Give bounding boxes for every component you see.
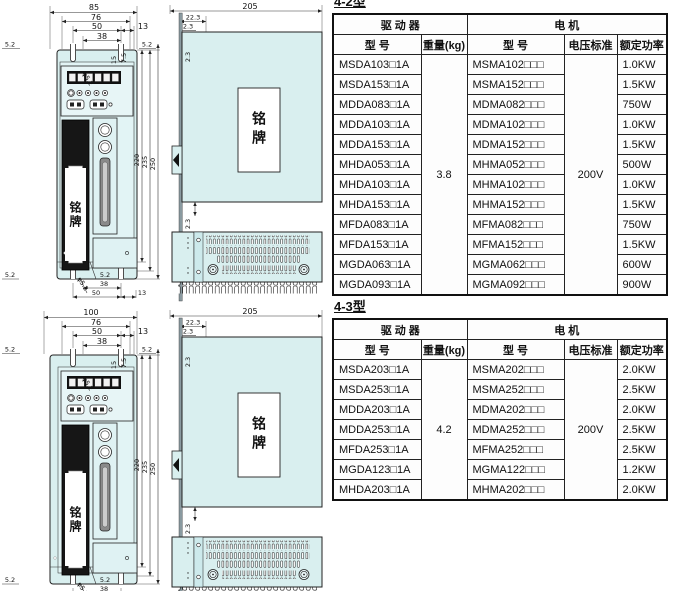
dim-label: 76 bbox=[91, 13, 101, 22]
connector-column bbox=[93, 423, 117, 539]
table-row: MSDA253□1AMSMA252□□□2.5KW bbox=[333, 380, 667, 400]
driver-model: MHDA203□1A bbox=[333, 480, 421, 501]
dim-label: 5.2 bbox=[142, 346, 152, 354]
dim-label: 205 bbox=[242, 2, 257, 11]
driver-model: MGDA063□1A bbox=[333, 255, 421, 275]
driver-model: MSDA203□1A bbox=[333, 360, 421, 380]
table-row: MGDA123□1AMGMA122□□□1.2KW bbox=[333, 460, 667, 480]
dim-label: 220 bbox=[133, 459, 141, 471]
motor-model: MDMA252□□□ bbox=[467, 420, 564, 440]
rated-power: 2.0KW bbox=[617, 400, 667, 420]
motor-model: MDMA082□□□ bbox=[467, 95, 564, 115]
nameplate-text: 铭牌 bbox=[239, 92, 279, 168]
rated-power: 750W bbox=[617, 215, 667, 235]
dim-label: 235 bbox=[141, 156, 149, 168]
nameplate-text: 铭牌 bbox=[65, 473, 86, 566]
terminal-cover bbox=[93, 543, 137, 573]
column-header-row: 型 号 重量(kg) 型 号 电压标准 额定功率 bbox=[333, 340, 667, 360]
vent-row bbox=[206, 551, 310, 560]
table-row: MHDA103□1AMHMA102□□□1.0KW bbox=[333, 175, 667, 195]
nameplate-text: 铭牌 bbox=[65, 168, 86, 261]
dim-label: 7.5 bbox=[120, 358, 128, 368]
rated-power: 2.0KW bbox=[617, 480, 667, 501]
driver-model: MFDA083□1A bbox=[333, 215, 421, 235]
motor-model: MSMA152□□□ bbox=[467, 75, 564, 95]
driver-model: MHDA153□1A bbox=[333, 195, 421, 215]
driver-model: MDDA083□1A bbox=[333, 95, 421, 115]
dim-label: 2.3 bbox=[184, 52, 192, 62]
rated-power: 900W bbox=[617, 275, 667, 296]
motor-model: MDMA202□□□ bbox=[467, 400, 564, 420]
driver-group-header: 驱 动 器 bbox=[333, 14, 467, 35]
spec-table-4-2: 驱 动 器 电 机 型 号 重量(kg) 型 号 电压标准 额定功率 MSDA1… bbox=[332, 13, 668, 296]
col-power: 额定功率 bbox=[617, 340, 667, 360]
rated-power: 1.0KW bbox=[617, 115, 667, 135]
table-row: MHDA053□1AMHMA052□□□500W bbox=[333, 155, 667, 175]
display-panel bbox=[61, 371, 133, 421]
group-header-row: 驱 动 器 电 机 bbox=[333, 319, 667, 340]
motor-model: MDMA102□□□ bbox=[467, 115, 564, 135]
col-voltage: 电压标准 bbox=[564, 35, 617, 55]
spec-table-4-3: 驱 动 器 电 机 型 号 重量(kg) 型 号 电压标准 额定功率 MSDA2… bbox=[332, 318, 668, 501]
vent-row bbox=[222, 571, 296, 580]
dim-label: 76 bbox=[91, 318, 101, 327]
rated-power: 1.5KW bbox=[617, 195, 667, 215]
motor-model: MSMA202□□□ bbox=[467, 360, 564, 380]
dim-label: 15 bbox=[110, 361, 118, 369]
drawing-group-4-2: 85 76 50 13 38 5.2 5.2 φ5.2 15 7.5 220 2… bbox=[0, 0, 332, 302]
motor-model: MGMA062□□□ bbox=[467, 255, 564, 275]
motor-model: MHMA052□□□ bbox=[467, 155, 564, 175]
rated-power: 600W bbox=[617, 255, 667, 275]
dim-label: 2.3 bbox=[183, 23, 193, 31]
top-view bbox=[172, 537, 322, 591]
table-row: MDDA083□1AMDMA082□□□750W bbox=[333, 95, 667, 115]
round-connector-1 bbox=[99, 429, 112, 442]
motor-model: MHMA102□□□ bbox=[467, 175, 564, 195]
table-row: MSDA103□1A 3.8 MSMA102□□□ 200V 1.0KW bbox=[333, 55, 667, 75]
dim-label: 38 bbox=[97, 32, 107, 41]
dim-label: 38 bbox=[100, 280, 108, 288]
dim-label: 5.2 bbox=[5, 346, 15, 354]
motor-model: MGMA092□□□ bbox=[467, 275, 564, 296]
vent-row bbox=[216, 256, 300, 265]
rated-power: 1.0KW bbox=[617, 55, 667, 75]
motor-model: MFMA082□□□ bbox=[467, 215, 564, 235]
rated-power: 1.5KW bbox=[617, 235, 667, 255]
round-connector-1 bbox=[99, 124, 112, 137]
spec-section-4-2: 4-2型 驱 动 器 电 机 型 号 重量(kg) 型 号 电压标准 额定功率 … bbox=[332, 0, 672, 296]
driver-group-header: 驱 动 器 bbox=[333, 319, 467, 340]
column-header-row: 型 号 重量(kg) 型 号 电压标准 额定功率 bbox=[333, 35, 667, 55]
motor-model: MFMA252□□□ bbox=[467, 440, 564, 460]
table-row: MDDA253□1AMDMA252□□□2.5KW bbox=[333, 420, 667, 440]
type-label: 4-2型 bbox=[334, 0, 672, 10]
rated-power: 1.0KW bbox=[617, 175, 667, 195]
dim-label: 205 bbox=[242, 307, 257, 316]
col-motor-model: 型 号 bbox=[467, 35, 564, 55]
dim-label: 50 bbox=[92, 327, 102, 336]
weight-value: 3.8 bbox=[421, 55, 467, 296]
dim-label: 2.3 bbox=[184, 524, 192, 534]
motor-model: MFMA152□□□ bbox=[467, 235, 564, 255]
dim-label: 22.3 bbox=[186, 14, 200, 22]
col-driver-model: 型 号 bbox=[333, 340, 421, 360]
table-row: MDDA103□1AMDMA102□□□1.0KW bbox=[333, 115, 667, 135]
rated-power: 1.5KW bbox=[617, 75, 667, 95]
dim-label: 2.3 bbox=[184, 219, 192, 229]
dim-label: 220 bbox=[133, 154, 141, 166]
voltage-value: 200V bbox=[564, 55, 617, 296]
col-motor-model: 型 号 bbox=[467, 340, 564, 360]
driver-model: MDDA103□1A bbox=[333, 115, 421, 135]
motor-group-header: 电 机 bbox=[467, 14, 667, 35]
rated-power: 2.0KW bbox=[617, 360, 667, 380]
col-weight: 重量(kg) bbox=[421, 340, 467, 360]
dim-label: 100 bbox=[83, 308, 98, 317]
dim-label: 13 bbox=[138, 289, 146, 297]
vent-row bbox=[216, 561, 300, 570]
group-header-row: 驱 动 器 电 机 bbox=[333, 14, 667, 35]
dim-label: 5.2 bbox=[5, 576, 15, 584]
display-panel bbox=[61, 66, 133, 116]
heatsink-fins bbox=[178, 588, 318, 591]
dim-label: 15 bbox=[110, 56, 118, 64]
dim-label: 38 bbox=[97, 337, 107, 346]
drawing-group-4-3: 100 76 50 13 38 5.2 5.2 φ5.2 15 7.5 220 … bbox=[0, 305, 332, 591]
driver-model: MSDA103□1A bbox=[333, 55, 421, 75]
motor-model: MHMA202□□□ bbox=[467, 480, 564, 501]
datasheet-page: { "colors": {"body_fill": "#d9efef", "pa… bbox=[0, 0, 693, 591]
rated-power: 1.5KW bbox=[617, 135, 667, 155]
dim-label: 250 bbox=[149, 463, 157, 475]
table-row: MSDA153□1AMSMA152□□□1.5KW bbox=[333, 75, 667, 95]
dim-label: 5.2 bbox=[100, 576, 110, 584]
motor-model: MHMA152□□□ bbox=[467, 195, 564, 215]
col-weight: 重量(kg) bbox=[421, 35, 467, 55]
voltage-value: 200V bbox=[564, 360, 617, 501]
table-row: MFDA253□1AMFMA252□□□2.5KW bbox=[333, 440, 667, 460]
vent-row bbox=[222, 266, 296, 275]
terminal-cover bbox=[93, 238, 137, 268]
dim-label: 2.3 bbox=[183, 328, 193, 336]
table-row: MGDA093□1AMGMA092□□□900W bbox=[333, 275, 667, 296]
dim-label: 13 bbox=[138, 22, 148, 31]
connector-column bbox=[93, 118, 117, 234]
driver-model: MDDA203□1A bbox=[333, 400, 421, 420]
driver-model: MSDA153□1A bbox=[333, 75, 421, 95]
round-connector-2 bbox=[99, 141, 112, 154]
dim-label: 5.2 bbox=[100, 271, 110, 279]
round-connector-2 bbox=[99, 446, 112, 459]
dim-label: 235 bbox=[141, 461, 149, 473]
vent-row bbox=[206, 541, 310, 550]
motor-model: MSMA102□□□ bbox=[467, 55, 564, 75]
driver-model: MSDA253□1A bbox=[333, 380, 421, 400]
heatsink-fins bbox=[178, 283, 318, 294]
dim-label: 250 bbox=[149, 158, 157, 170]
dim-label: 5.2 bbox=[5, 41, 15, 49]
table-row: MGDA063□1AMGMA062□□□600W bbox=[333, 255, 667, 275]
dim-label: 5.2 bbox=[5, 271, 15, 279]
driver-model: MHDA053□1A bbox=[333, 155, 421, 175]
driver-model: MFDA253□1A bbox=[333, 440, 421, 460]
vent-row bbox=[206, 236, 310, 245]
table-row: MHDA203□1AMHMA202□□□2.0KW bbox=[333, 480, 667, 501]
table-row: MSDA203□1A 4.2 MSMA202□□□ 200V 2.0KW bbox=[333, 360, 667, 380]
driver-model: MFDA153□1A bbox=[333, 235, 421, 255]
motor-model: MSMA252□□□ bbox=[467, 380, 564, 400]
table-row: MDDA153□1AMDMA152□□□1.5KW bbox=[333, 135, 667, 155]
rated-power: 1.2KW bbox=[617, 460, 667, 480]
nameplate-text: 铭牌 bbox=[239, 397, 279, 473]
dim-label: 7.5 bbox=[120, 53, 128, 63]
dim-label: 50 bbox=[92, 289, 100, 297]
dim-label: 50 bbox=[92, 22, 102, 31]
driver-model: MDDA253□1A bbox=[333, 420, 421, 440]
col-voltage: 电压标准 bbox=[564, 340, 617, 360]
rated-power: 500W bbox=[617, 155, 667, 175]
motor-group-header: 电 机 bbox=[467, 319, 667, 340]
rated-power: 2.5KW bbox=[617, 440, 667, 460]
driver-model: MHDA103□1A bbox=[333, 175, 421, 195]
rated-power: 2.5KW bbox=[617, 380, 667, 400]
dim-label: 2.3 bbox=[184, 357, 192, 367]
table-row: MFDA083□1AMFMA082□□□750W bbox=[333, 215, 667, 235]
vent-row bbox=[206, 246, 310, 255]
driver-model: MGDA123□1A bbox=[333, 460, 421, 480]
table-row: MHDA153□1AMHMA152□□□1.5KW bbox=[333, 195, 667, 215]
table-row: MFDA153□1AMFMA152□□□1.5KW bbox=[333, 235, 667, 255]
dim-label: 22.3 bbox=[186, 319, 200, 327]
driver-model: MDDA153□1A bbox=[333, 135, 421, 155]
dim-label: 38 bbox=[100, 585, 108, 591]
type-label: 4-3型 bbox=[334, 296, 672, 315]
col-power: 额定功率 bbox=[617, 35, 667, 55]
rated-power: 2.5KW bbox=[617, 420, 667, 440]
motor-model: MDMA152□□□ bbox=[467, 135, 564, 155]
dim-label: 5.2 bbox=[142, 41, 152, 49]
dim-label: 85 bbox=[89, 3, 99, 12]
weight-value: 4.2 bbox=[421, 360, 467, 501]
table-row: MDDA203□1AMDMA202□□□2.0KW bbox=[333, 400, 667, 420]
top-view bbox=[172, 232, 322, 294]
rated-power: 750W bbox=[617, 95, 667, 115]
stripe-screw bbox=[54, 557, 57, 560]
driver-model: MGDA093□1A bbox=[333, 275, 421, 296]
col-driver-model: 型 号 bbox=[333, 35, 421, 55]
dim-label: 13 bbox=[138, 327, 148, 336]
spec-section-4-3: 4-3型 驱 动 器 电 机 型 号 重量(kg) 型 号 电压标准 额定功率 … bbox=[332, 296, 672, 501]
motor-model: MGMA122□□□ bbox=[467, 460, 564, 480]
